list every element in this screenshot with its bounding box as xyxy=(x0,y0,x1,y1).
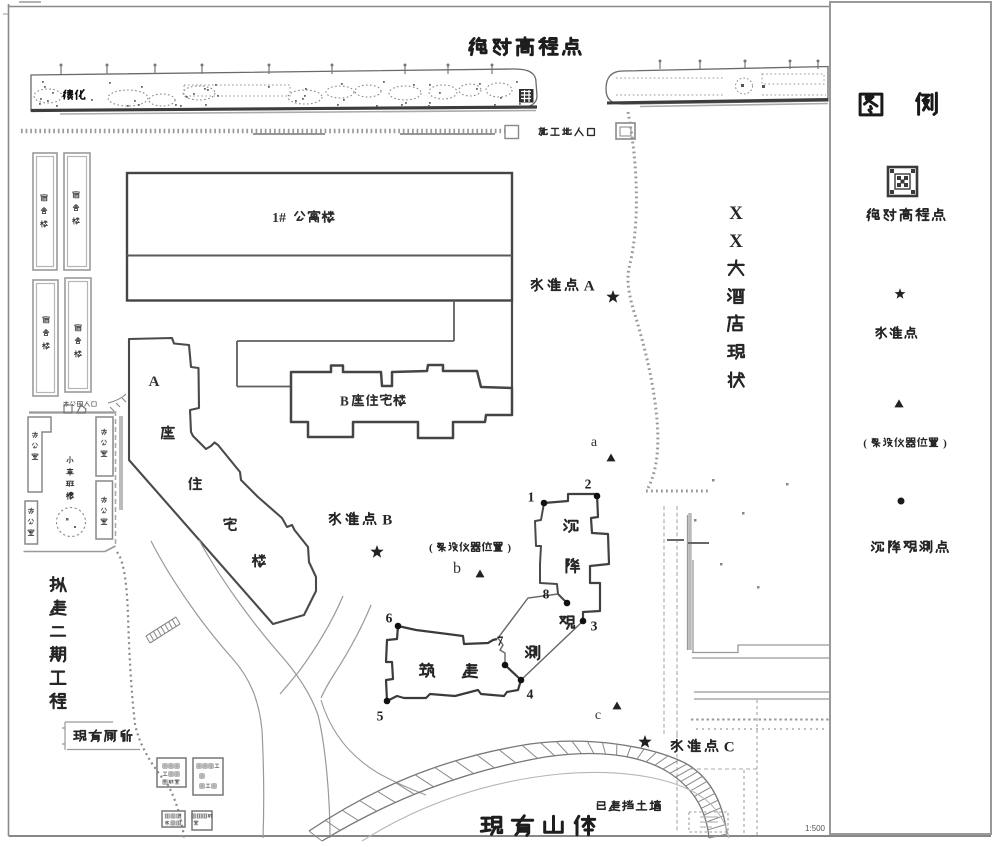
svg-text:(: ( xyxy=(429,542,433,554)
svg-text:B: B xyxy=(382,512,392,528)
svg-text:1#: 1# xyxy=(272,211,286,226)
svg-text:4: 4 xyxy=(527,687,534,702)
svg-text:5: 5 xyxy=(377,709,384,724)
svg-text:X: X xyxy=(729,203,743,224)
svg-text:c: c xyxy=(595,708,601,723)
svg-text:A: A xyxy=(149,374,160,390)
svg-text:A: A xyxy=(584,278,595,294)
svg-text:B: B xyxy=(340,393,349,408)
svg-text:C: C xyxy=(724,739,735,755)
svg-text:6: 6 xyxy=(386,611,393,626)
svg-text:7: 7 xyxy=(497,634,504,649)
svg-text:1: 1 xyxy=(528,490,535,505)
svg-text:): ) xyxy=(507,542,511,554)
svg-text:3: 3 xyxy=(591,619,598,634)
svg-text:X: X xyxy=(729,231,743,252)
svg-text:b: b xyxy=(453,560,461,577)
svg-text:a: a xyxy=(591,435,598,450)
svg-text:2: 2 xyxy=(585,477,592,492)
svg-text:(: ( xyxy=(863,438,867,450)
svg-text:1:500: 1:500 xyxy=(805,824,826,833)
svg-text:): ) xyxy=(943,438,947,450)
svg-text:8: 8 xyxy=(543,587,550,602)
